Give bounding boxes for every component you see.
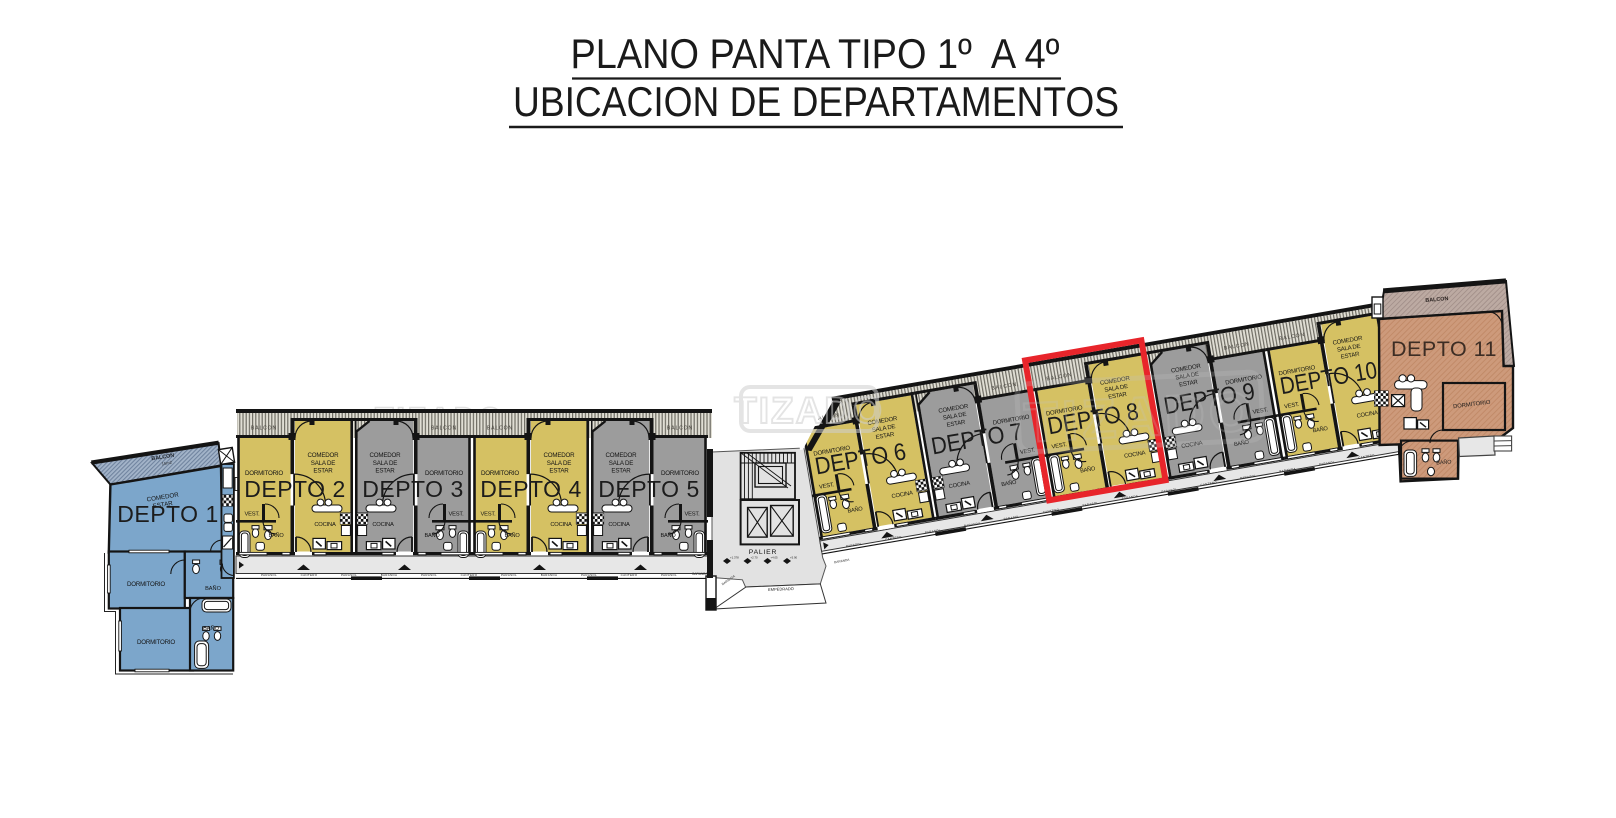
svg-text:BAÑO: BAÑO xyxy=(203,625,220,632)
svg-text:BAÑO: BAÑO xyxy=(1436,458,1452,466)
svg-text:ESTAR: ESTAR xyxy=(375,468,395,475)
svg-text:PARASOL: PARASOL xyxy=(421,573,437,577)
svg-text:COCINA: COCINA xyxy=(314,522,336,528)
svg-text:BALCON: BALCON xyxy=(251,426,277,432)
svg-text:DEPTO 2: DEPTO 2 xyxy=(244,476,346,502)
svg-text:COMEDOR: COMEDOR xyxy=(308,452,340,459)
svg-text:ESTAR: ESTAR xyxy=(549,468,569,475)
svg-text:PARASOL: PARASOL xyxy=(501,573,517,577)
svg-text:BALCON: BALCON xyxy=(431,426,457,432)
svg-text:ESTAR: ESTAR xyxy=(313,468,333,475)
svg-text:COCINA: COCINA xyxy=(608,522,630,528)
svg-text:COCINA: COCINA xyxy=(550,522,572,528)
svg-text:BAÑO: BAÑO xyxy=(205,585,222,592)
svg-text:DEPTO 4: DEPTO 4 xyxy=(480,476,582,502)
svg-text:CANTERO: CANTERO xyxy=(461,573,478,577)
svg-text:PARASOL: PARASOL xyxy=(661,573,677,577)
svg-text:DEPTO 11: DEPTO 11 xyxy=(1391,337,1497,361)
svg-text:SALA DE: SALA DE xyxy=(547,460,571,467)
svg-text:VEST.: VEST. xyxy=(684,512,700,518)
svg-text:DEPTO 3: DEPTO 3 xyxy=(362,476,464,502)
svg-text:PARASOL: PARASOL xyxy=(581,573,597,577)
svg-text:BALCON: BALCON xyxy=(667,426,693,432)
svg-text:PARASOL: PARASOL xyxy=(341,573,357,577)
svg-text:BAÑO: BAÑO xyxy=(504,532,520,539)
svg-text:DEPTO 5: DEPTO 5 xyxy=(598,476,700,502)
svg-text:BARANDA: BARANDA xyxy=(541,573,558,577)
svg-text:BAÑO: BAÑO xyxy=(268,532,284,539)
svg-text:TIZADO: TIZADO xyxy=(734,390,884,431)
svg-text:+5.90: +5.90 xyxy=(790,556,798,560)
svg-text:BALCON: BALCON xyxy=(487,426,513,432)
svg-text:VEST.: VEST. xyxy=(244,512,260,518)
svg-text:+2.70: +2.70 xyxy=(751,556,759,560)
svg-text:DEPTO 1: DEPTO 1 xyxy=(117,501,219,527)
svg-text:+4.05: +4.05 xyxy=(771,556,779,560)
svg-text:SALA DE: SALA DE xyxy=(609,460,633,467)
svg-text:BARANDA: BARANDA xyxy=(381,573,398,577)
svg-text:TIZADO: TIZADO xyxy=(1023,379,1258,454)
svg-text:BAÑO: BAÑO xyxy=(424,532,440,539)
svg-text:VEST.: VEST. xyxy=(448,512,464,518)
svg-text:COCINA: COCINA xyxy=(372,522,394,528)
svg-text:DORMITORIO: DORMITORIO xyxy=(127,581,165,588)
svg-text:COMEDOR: COMEDOR xyxy=(370,452,402,459)
svg-text:DORMITORIO: DORMITORIO xyxy=(137,639,175,646)
svg-text:COMEDOR: COMEDOR xyxy=(544,452,576,459)
svg-text:COMEDOR: COMEDOR xyxy=(606,452,638,459)
svg-text:UBICACION DE DEPARTAMENTOS: UBICACION DE DEPARTAMENTOS xyxy=(513,78,1119,125)
svg-text:VEST.: VEST. xyxy=(480,512,496,518)
svg-text:CANTERO: CANTERO xyxy=(301,573,318,577)
svg-text:CANTERO: CANTERO xyxy=(621,573,638,577)
svg-text:PARASOL: PARASOL xyxy=(261,573,277,577)
svg-text:PLANO PANTA TIPO 1º A 4º: PLANO PANTA TIPO 1º A 4º xyxy=(571,30,1060,77)
svg-text:ESTAR: ESTAR xyxy=(611,468,631,475)
svg-text:EMPEDRADO: EMPEDRADO xyxy=(768,586,794,592)
svg-text:+1.378: +1.378 xyxy=(730,556,739,560)
svg-text:BAÑO: BAÑO xyxy=(660,532,676,539)
svg-text:SALA DE: SALA DE xyxy=(373,460,397,467)
svg-text:SALA DE: SALA DE xyxy=(311,460,335,467)
